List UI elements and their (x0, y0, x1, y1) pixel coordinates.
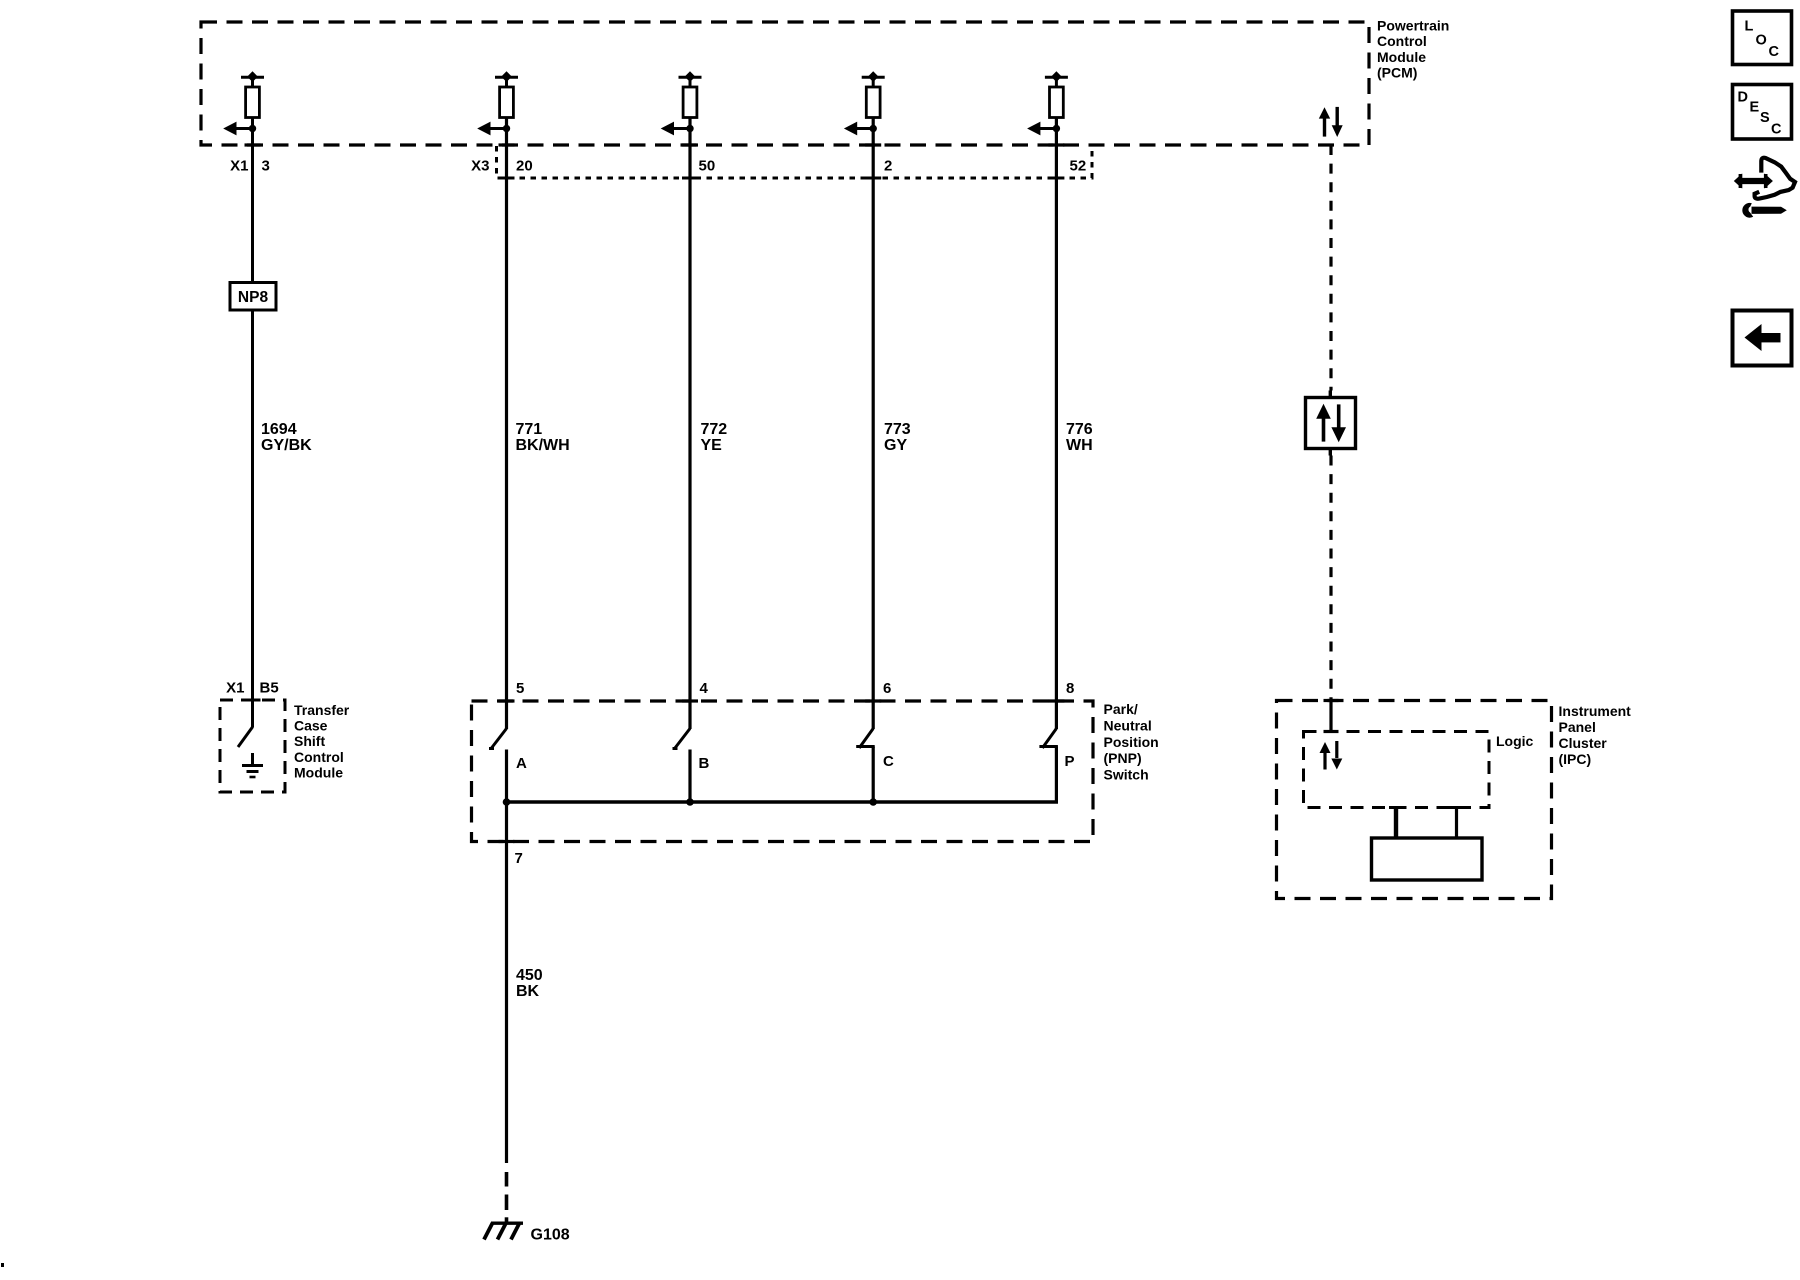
svg-text:52: 52 (1070, 158, 1087, 175)
svg-text:WH: WH (1066, 437, 1093, 454)
svg-text:(IPC): (IPC) (1559, 751, 1592, 767)
svg-text:Neutral: Neutral (1104, 717, 1152, 733)
svg-text:C: C (1771, 122, 1782, 138)
svg-text:(PCM): (PCM) (1377, 64, 1417, 80)
svg-text:5: 5 (516, 680, 524, 697)
svg-text:Park/: Park/ (1104, 701, 1138, 717)
svg-text:BK/WH: BK/WH (516, 437, 570, 454)
svg-text:Shift: Shift (294, 733, 325, 749)
svg-text:C: C (883, 753, 894, 770)
svg-text:B: B (699, 755, 710, 772)
svg-text:Module: Module (294, 764, 343, 780)
svg-text:Control: Control (294, 749, 344, 765)
svg-text:Powertrain: Powertrain (1377, 18, 1449, 34)
svg-text:Case: Case (294, 718, 328, 734)
svg-text:YE: YE (701, 437, 723, 454)
svg-text:Instrument: Instrument (1559, 703, 1632, 719)
svg-text:Position: Position (1104, 734, 1159, 750)
svg-text:2: 2 (884, 158, 892, 175)
svg-text:GY: GY (884, 437, 907, 454)
svg-text:450: 450 (516, 967, 543, 984)
svg-text:Logic: Logic (1496, 733, 1534, 749)
svg-text:Switch: Switch (1104, 767, 1149, 783)
svg-text:Control: Control (1377, 33, 1427, 49)
svg-text:20: 20 (516, 158, 533, 175)
svg-text:BK: BK (516, 983, 540, 1000)
svg-text:P: P (1065, 753, 1075, 770)
svg-text:NP8: NP8 (238, 289, 269, 306)
svg-text:773: 773 (884, 421, 911, 438)
svg-text:G108: G108 (531, 1227, 570, 1244)
svg-text:B5: B5 (260, 680, 279, 697)
svg-text:Cluster: Cluster (1559, 735, 1608, 751)
svg-text:50: 50 (699, 158, 716, 175)
svg-text:GY/BK: GY/BK (261, 437, 312, 454)
svg-text:(PNP): (PNP) (1104, 750, 1142, 766)
svg-text:Transfer: Transfer (294, 702, 350, 718)
svg-text:7: 7 (515, 850, 523, 867)
svg-text:6: 6 (883, 680, 891, 697)
svg-text:Panel: Panel (1559, 719, 1596, 735)
svg-text:772: 772 (701, 421, 728, 438)
svg-text:C: C (1769, 44, 1780, 60)
svg-text:3: 3 (262, 158, 270, 175)
svg-text:776: 776 (1066, 421, 1093, 438)
svg-text:O: O (1756, 33, 1767, 49)
svg-text:X3: X3 (471, 158, 489, 175)
svg-text:L: L (1745, 19, 1754, 35)
svg-text:4: 4 (700, 680, 709, 697)
svg-text:A: A (516, 755, 527, 772)
svg-text:E: E (1750, 100, 1760, 116)
svg-text:1694: 1694 (261, 421, 297, 438)
svg-text:X1: X1 (230, 158, 248, 175)
svg-text:771: 771 (516, 421, 543, 438)
svg-text:X1: X1 (226, 680, 244, 697)
svg-text:Module: Module (1377, 49, 1426, 65)
svg-text:8: 8 (1066, 680, 1074, 697)
svg-text:D: D (1738, 90, 1748, 106)
svg-text:S: S (1760, 110, 1770, 126)
